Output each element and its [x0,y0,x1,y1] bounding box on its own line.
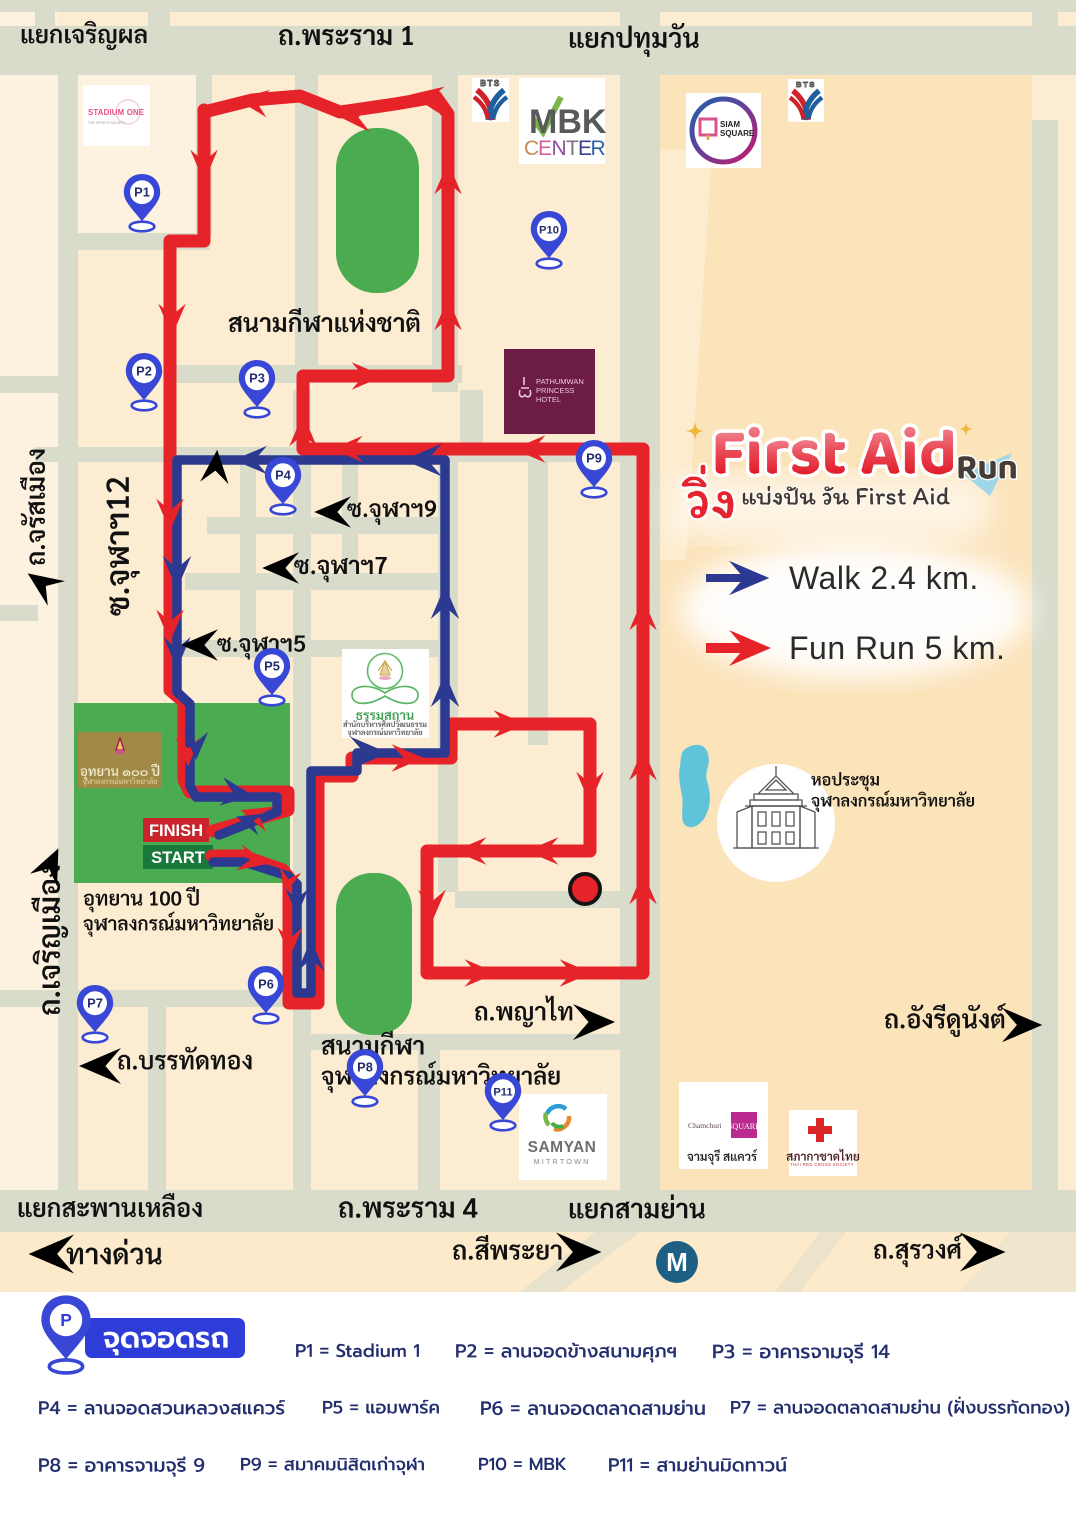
svg-text:P5: P5 [264,659,280,674]
svg-text:P: P [60,1310,72,1330]
svg-text:SQUARE: SQUARE [728,1122,760,1131]
svg-text:P8: P8 [357,1060,373,1075]
svg-text:M: M [666,1247,688,1277]
svg-text:P9: P9 [586,451,602,466]
svg-text:PRINCESS: PRINCESS [536,386,574,395]
svg-text:P7: P7 [87,996,103,1011]
svg-text:MITRTOWN: MITRTOWN [534,1157,591,1166]
svg-text:BTS: BTS [796,80,816,89]
svg-text:P10: P10 [539,225,559,237]
svg-text:E: E [538,137,552,160]
svg-text:C: C [524,137,539,160]
svg-text:HOTEL: HOTEL [536,395,561,404]
svg-text:N: N [552,137,567,160]
svg-text:SAMYAN: SAMYAN [528,1139,597,1156]
svg-text:Walk 2.4 km.: Walk 2.4 km. [789,560,979,596]
svg-text:STADIUM ONE: STADIUM ONE [88,108,144,117]
svg-text:P3: P3 [249,371,265,386]
svg-text:P2: P2 [136,364,152,379]
svg-text:SQUARE: SQUARE [720,129,755,138]
svg-text:PATHUMWAN: PATHUMWAN [536,377,584,386]
svg-text:Chamchuri: Chamchuri [688,1121,722,1130]
svg-text:P4: P4 [275,468,292,483]
svg-text:FINISH: FINISH [149,822,203,840]
svg-text:MBK: MBK [529,103,607,141]
svg-text:P11: P11 [493,1087,512,1099]
svg-text:SIAM: SIAM [720,120,740,129]
svg-text:R: R [591,137,606,160]
svg-text:Fun Run 5 km.: Fun Run 5 km. [789,630,1005,666]
svg-text:START: START [151,849,205,867]
svg-text:BTS: BTS [480,79,501,88]
svg-text:P1: P1 [134,185,150,200]
svg-text:THE SPORTS SOCIETY: THE SPORTS SOCIETY [88,121,126,125]
svg-text:THAI RED CROSS SOCIETY: THAI RED CROSS SOCIETY [790,1162,854,1167]
svg-text:P6: P6 [258,977,274,992]
